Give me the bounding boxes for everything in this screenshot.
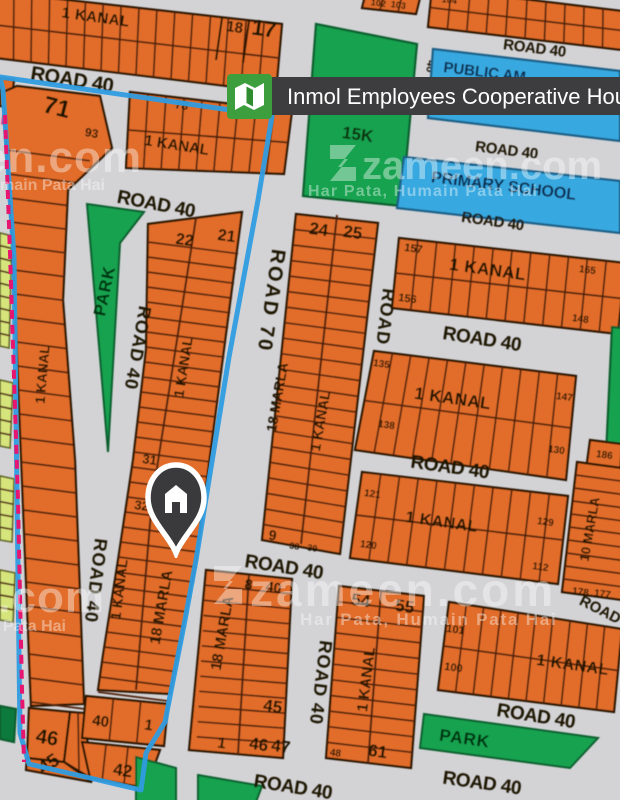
svg-text:157: 157 [403, 242, 423, 256]
svg-text:46: 46 [248, 734, 269, 755]
svg-text:een.com: een.com [0, 573, 105, 622]
svg-text:Har Pata, Humain Pata Hai: Har Pata, Humain Pata Hai [300, 610, 558, 629]
svg-text:zameen.com: zameen.com [362, 144, 602, 188]
svg-text:39: 39 [307, 542, 318, 553]
svg-text:100: 100 [443, 661, 463, 675]
svg-text:156: 156 [397, 292, 417, 306]
svg-text:21: 21 [217, 227, 237, 246]
svg-text:42: 42 [112, 760, 133, 781]
svg-text:61: 61 [367, 741, 388, 762]
svg-text:38: 38 [289, 540, 300, 551]
svg-text:24: 24 [308, 219, 330, 241]
svg-text:48: 48 [329, 747, 342, 760]
svg-text:40: 40 [91, 712, 110, 731]
svg-text:25: 25 [342, 222, 363, 243]
svg-text:18: 18 [225, 18, 244, 37]
svg-text:47: 47 [270, 736, 291, 757]
svg-text:ain Pata Hai: ain Pata Hai [0, 618, 66, 635]
svg-text:main Pata Hai: main Pata Hai [0, 177, 105, 194]
svg-text:en.com: en.com [0, 133, 142, 182]
svg-text:22: 22 [175, 231, 195, 250]
svg-text:46: 46 [34, 725, 60, 751]
svg-text:zameen.com: zameen.com [250, 564, 556, 616]
svg-text:17: 17 [250, 14, 278, 42]
svg-text:45: 45 [262, 696, 283, 717]
svg-text:Har Pata, Humain Pata Hai: Har Pata, Humain Pata Hai [308, 183, 538, 200]
